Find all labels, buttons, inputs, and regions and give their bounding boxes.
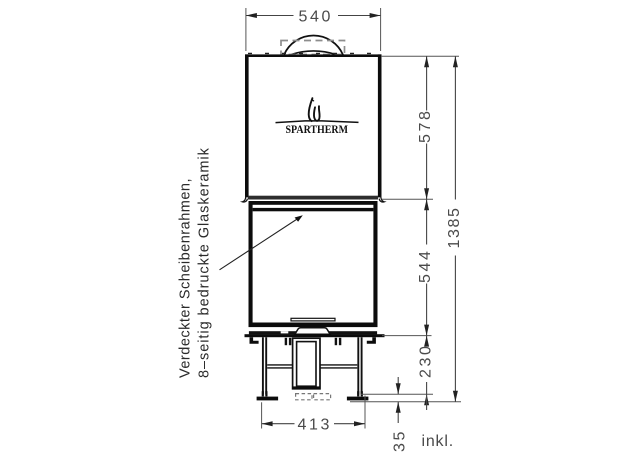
svg-text:413: 413 <box>298 417 333 434</box>
svg-text:Verdeckter Scheibenrahmen,: Verdeckter Scheibenrahmen, <box>178 178 194 378</box>
svg-text:8–seitig bedruckte Glaskeramik: 8–seitig bedruckte Glaskeramik <box>197 147 213 378</box>
svg-text:35: 35 <box>391 429 408 452</box>
svg-text:1385: 1385 <box>446 207 463 249</box>
svg-text:540: 540 <box>299 8 334 25</box>
svg-text:578: 578 <box>417 109 434 144</box>
svg-text:230: 230 <box>418 344 435 379</box>
svg-text:SPARTHERM: SPARTHERM <box>286 124 349 136</box>
svg-text:inkl.: inkl. <box>422 433 454 450</box>
svg-text:544: 544 <box>417 249 434 284</box>
